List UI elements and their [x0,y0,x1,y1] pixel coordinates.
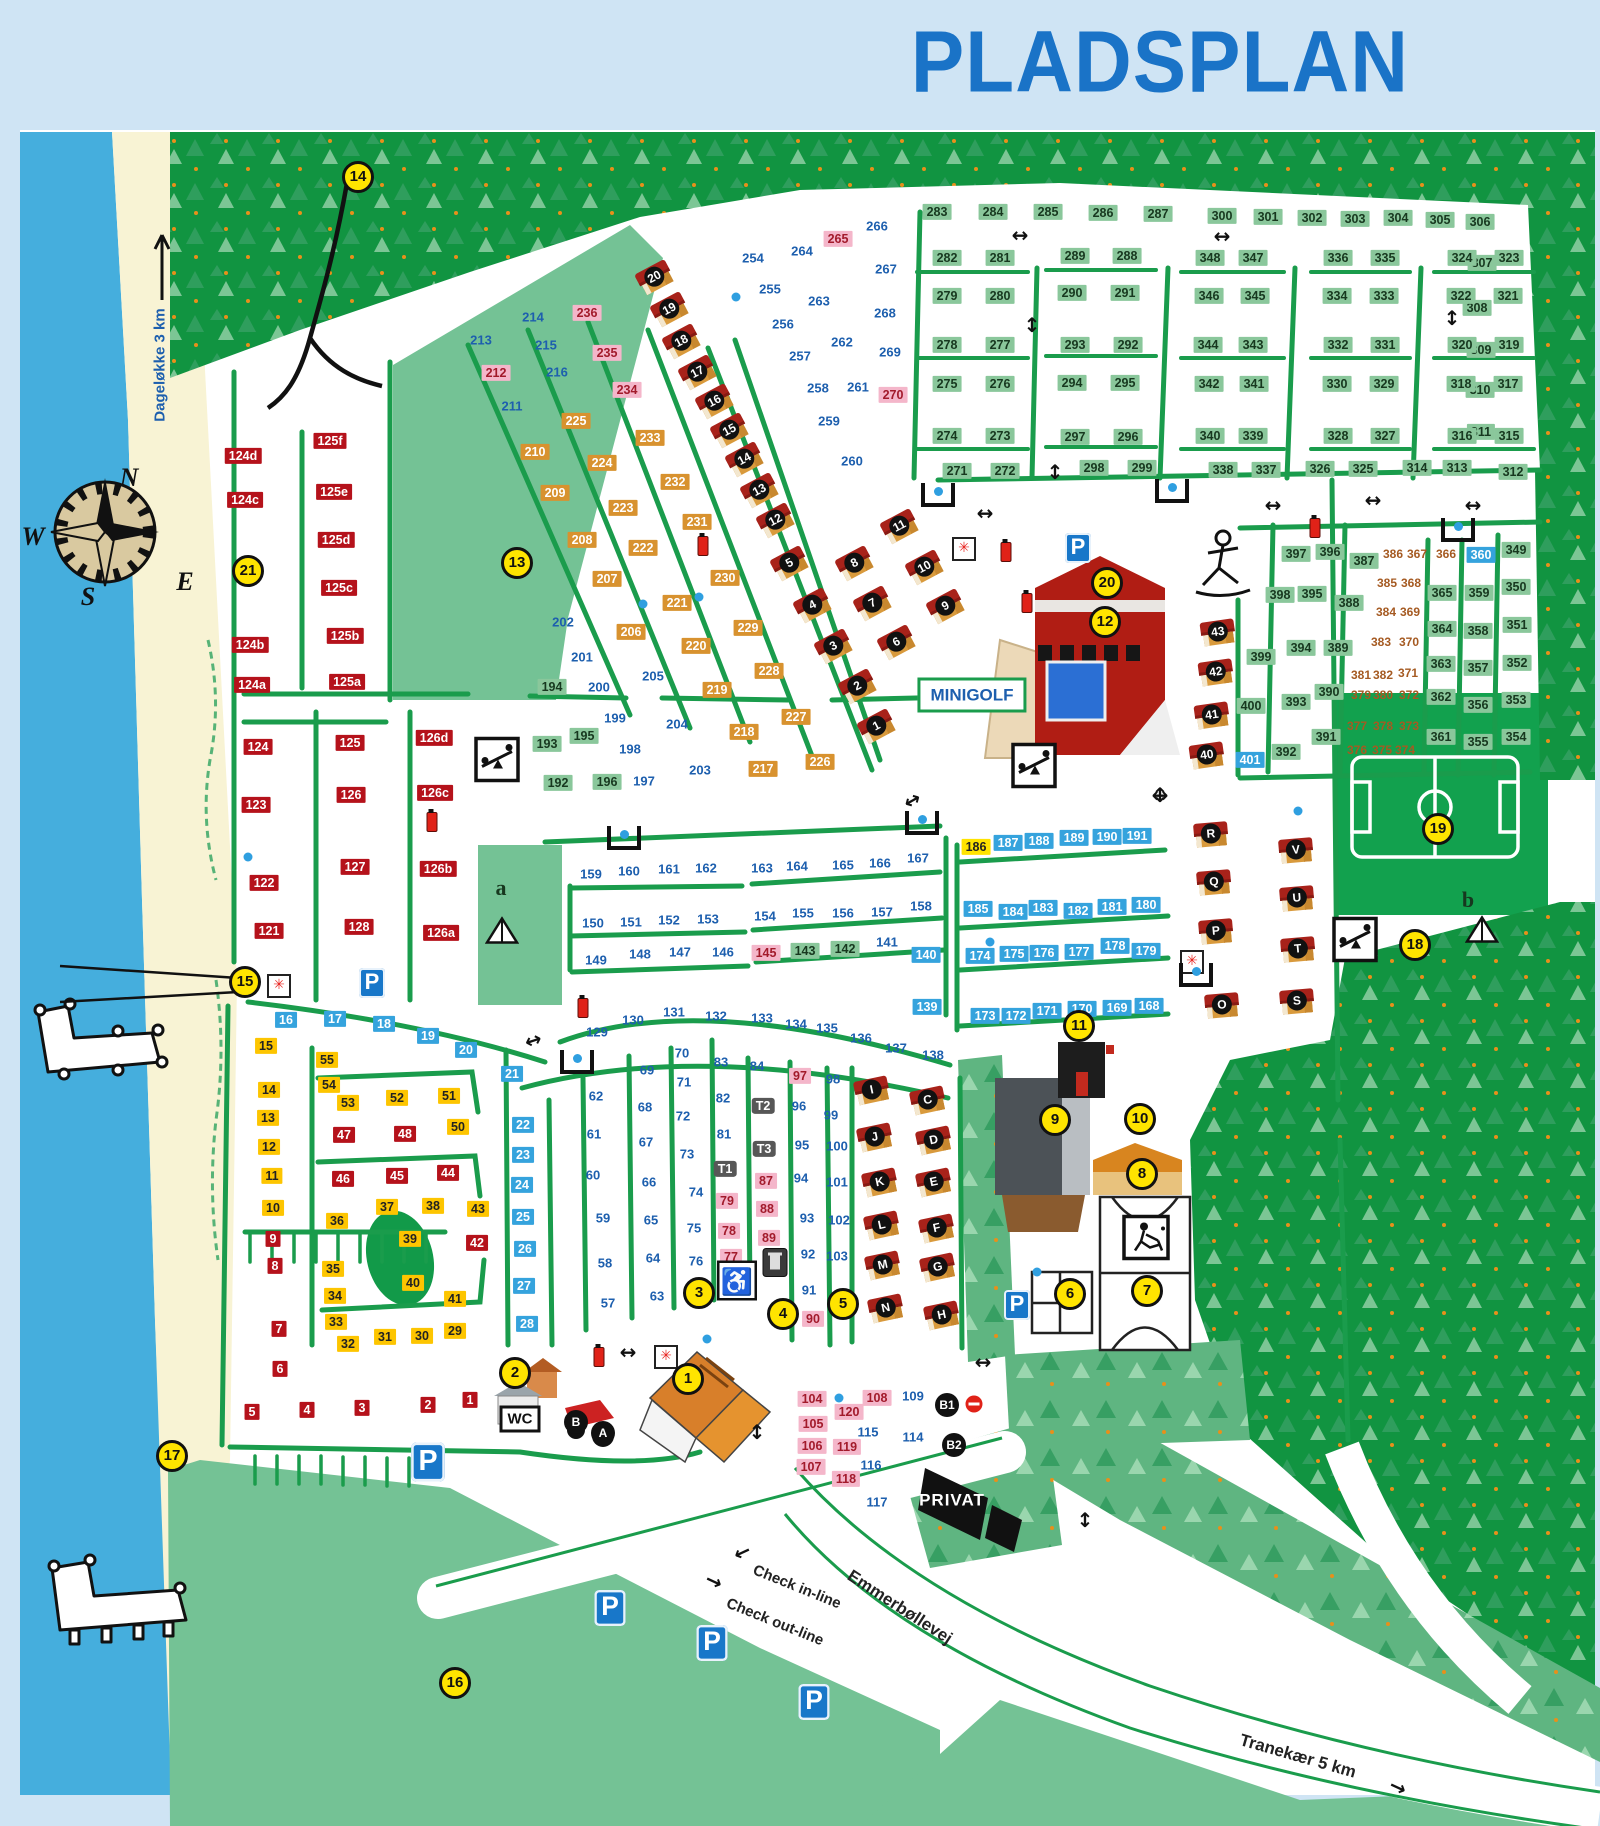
hall-building [995,1078,1090,1232]
wc-label: WC [500,1406,541,1433]
campsite-map: PLADSPLAN MINIGOLF WC PRIVAT Check in-li… [0,0,1600,1826]
compass-n: N [120,465,139,491]
privat-label: PRIVAT [919,1492,985,1509]
sports-field-area [1335,693,1548,915]
compass-s: S [81,584,95,610]
map-base-art [0,0,1600,1826]
tent-area-b-label: b [1462,889,1474,911]
minigolf-label: MINIGOLF [917,678,1026,713]
dageloekke-label: Dageløkke 3 km [153,308,168,421]
compass-e: E [176,569,193,595]
tent-area-a-label: a [496,877,507,899]
field-a [478,845,562,1005]
compass-w: W [21,524,44,550]
forest-right-strip [1535,470,1595,780]
page-title: PLADSPLAN [911,18,1409,105]
